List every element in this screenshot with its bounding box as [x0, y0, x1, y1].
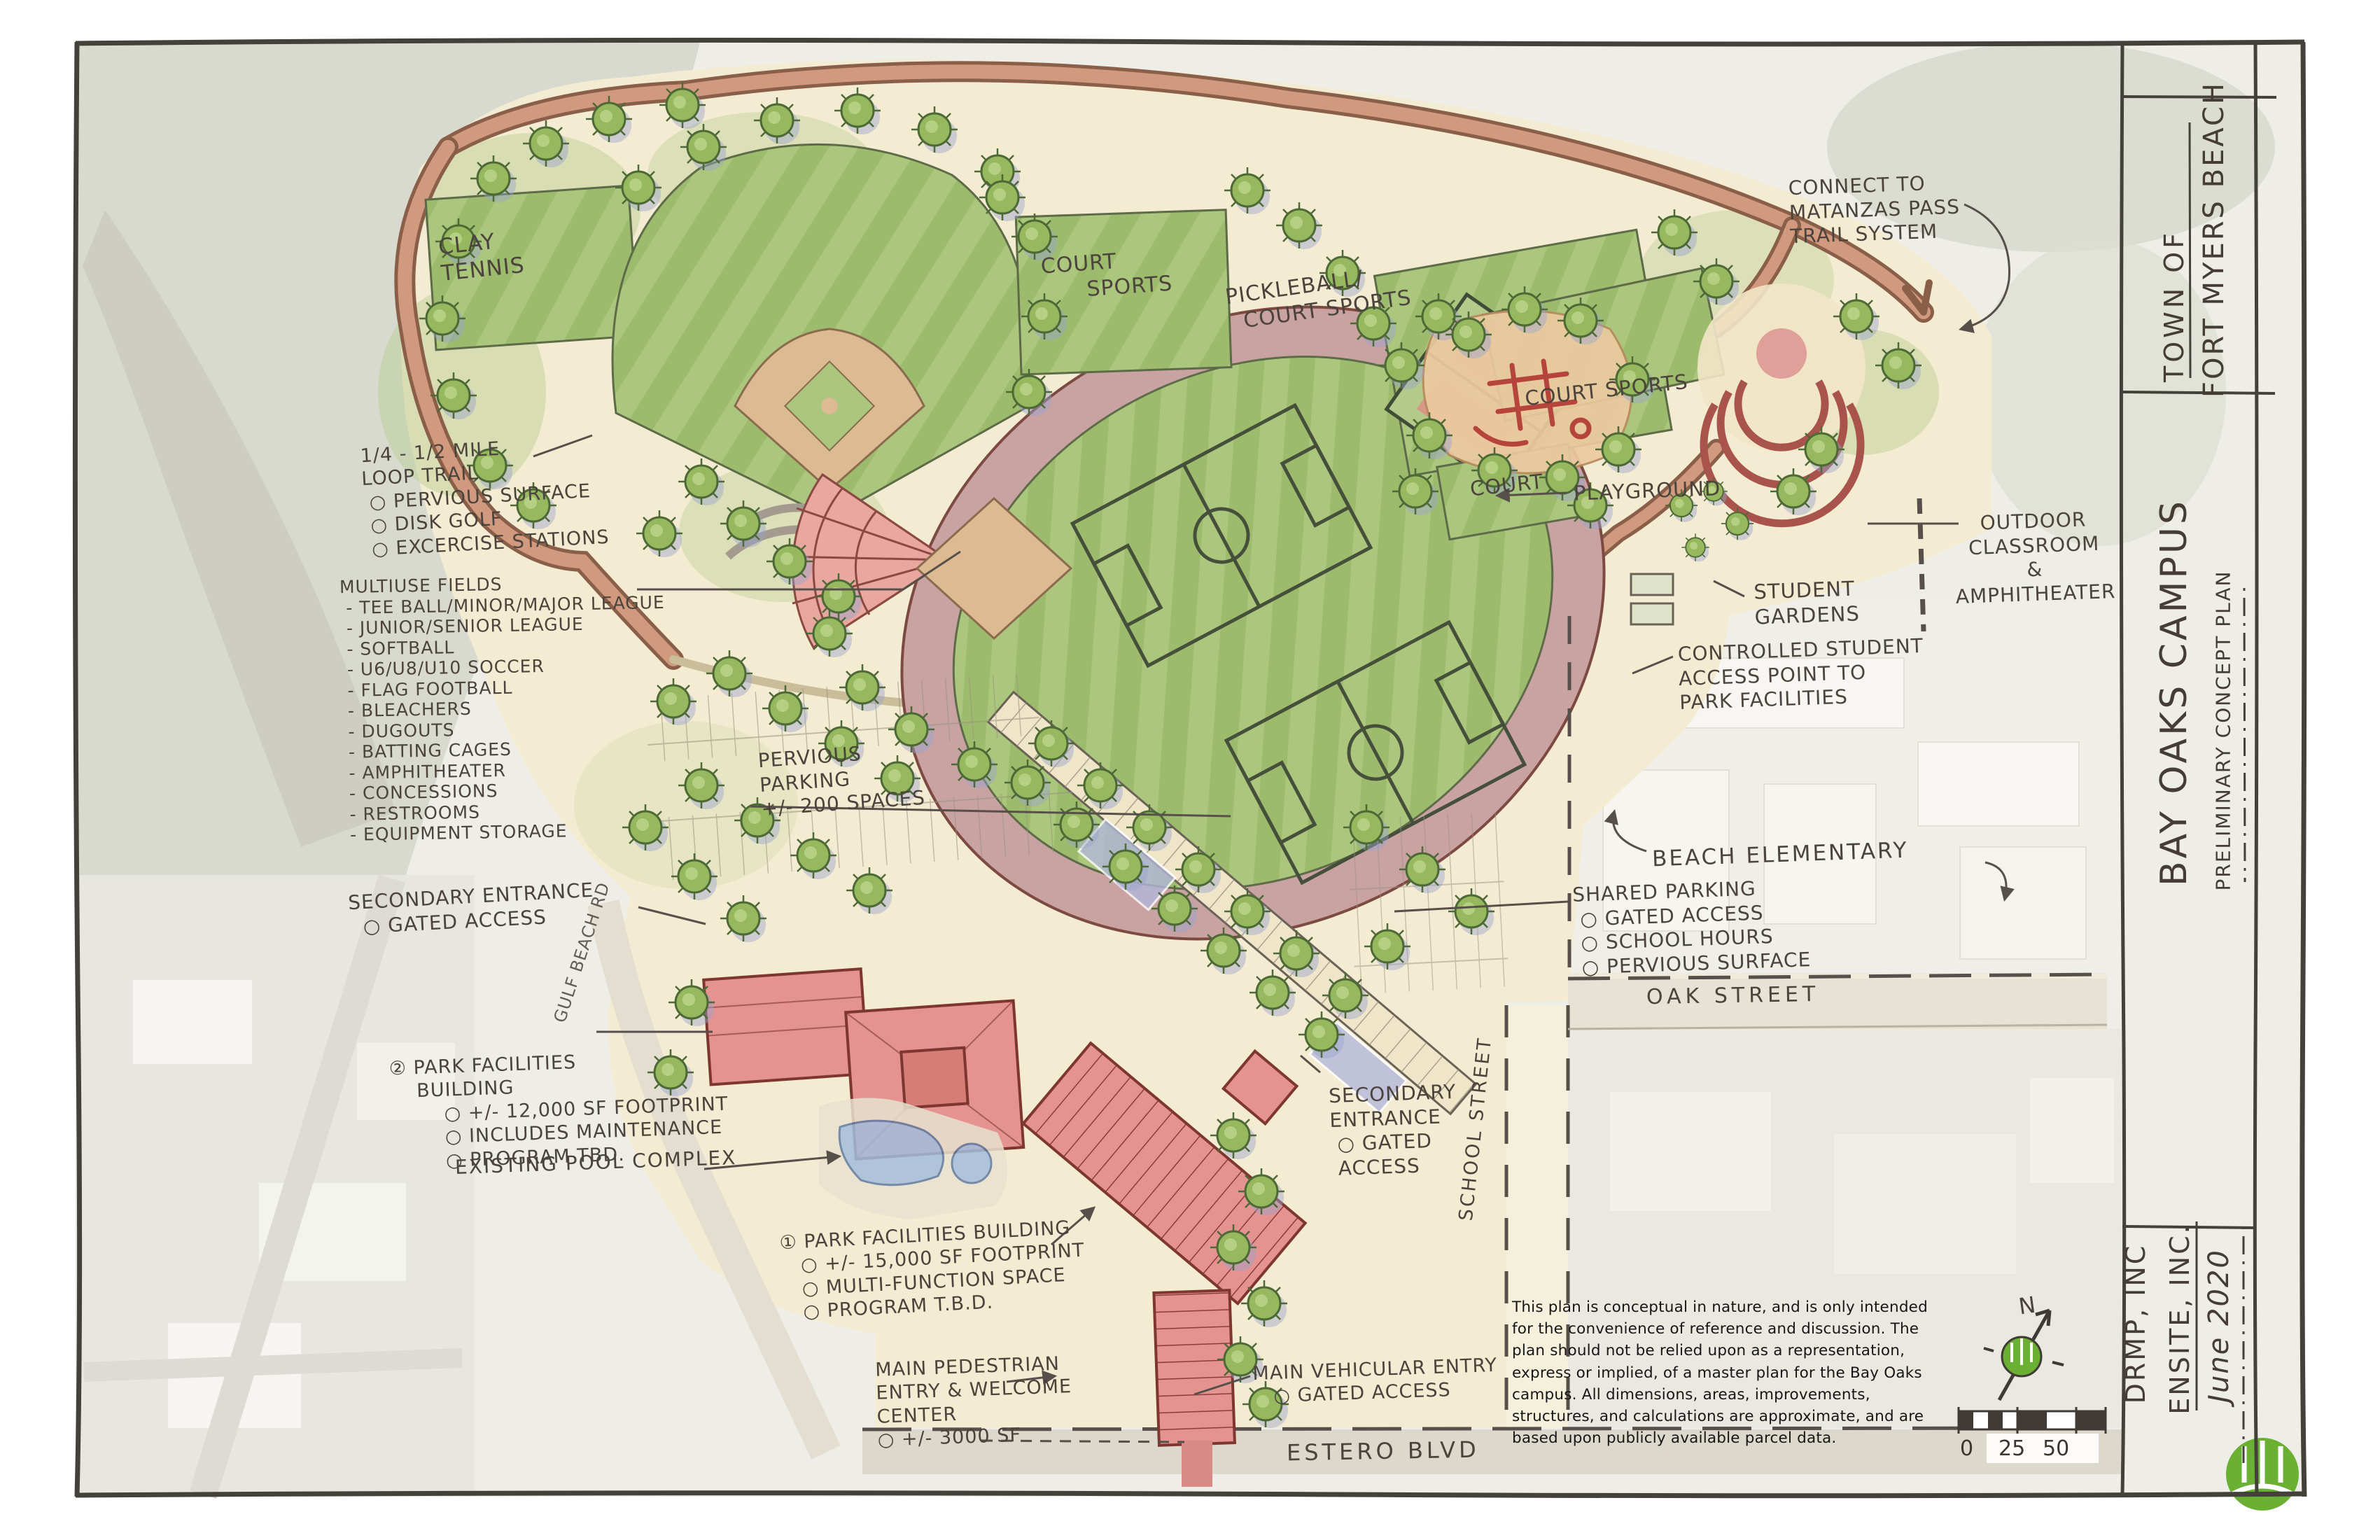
scale-label-25: 25	[1998, 1436, 2025, 1461]
titleblock-town-line1: TOWN OF	[2159, 166, 2190, 446]
bay-oaks-logo	[2226, 1438, 2299, 1511]
concept-plan-sheet: CONNECT TO MATANZAS PASS TRAIL SYSTEM CL…	[0, 0, 2380, 1540]
label-student-gardens: STUDENT GARDENS	[1753, 576, 1861, 630]
titleblock-project-subtitle: PRELIMINARY CONCEPT PLAN	[2212, 583, 2235, 891]
titleblock-project-title: BAY OAKS CAMPUS	[2153, 578, 2195, 886]
label-loop-trail: 1/4 - 1/2 MILE LOOP TRAIL ○ PERVIOUS SUR…	[360, 432, 610, 561]
titleblock-date: June 2020	[2203, 1186, 2235, 1466]
label-clay-tennis: CLAY TENNIS	[437, 225, 526, 288]
north-label: N	[2017, 1291, 2038, 1321]
label-pervious-parking: PERVIOUS PARKING +/- 200 SPACES	[757, 738, 926, 822]
label-main-vehicular-entry: MAIN VEHICULAR ENTRY ○ GATED ACCESS	[1252, 1354, 1499, 1409]
label-oak-street: OAK STREET	[1646, 981, 1820, 1010]
scale-label-0: 0	[1960, 1436, 1973, 1461]
label-outdoor-classroom: OUTDOOR CLASSROOM & AMPHITHEATER	[1953, 507, 2116, 610]
label-multiuse-fields: MULTIUSE FIELDS - TEE BALL/MINOR/MAJOR L…	[339, 571, 669, 846]
titleblock-town-line2: FORT MYERS BEACH	[2198, 90, 2230, 398]
label-main-pedestrian-entry: MAIN PEDESTRIAN ENTRY & WELCOME CENTER ○…	[875, 1352, 1074, 1452]
titleblock-consultant-1: DRMP, INC	[2120, 1184, 2151, 1464]
label-controlled-access: CONTROLLED STUDENT ACCESS POINT TO PARK …	[1677, 634, 1926, 715]
scale-label-50: 50	[2043, 1436, 2069, 1461]
label-playground: PLAYGROUND	[1573, 476, 1721, 506]
disclaimer-note: This plan is conceptual in nature, and i…	[1512, 1296, 1932, 1449]
label-shared-parking: SHARED PARKING ○ GATED ACCESS ○ SCHOOL H…	[1572, 875, 1812, 981]
welcome-center-building	[1154, 1290, 1235, 1445]
label-connect-trail: CONNECT TO MATANZAS PASS TRAIL SYSTEM	[1788, 171, 1961, 250]
label-court-sports-top: COURT SPORTS	[1040, 245, 1174, 306]
titleblock-consultant-2: ENSITE, INC.	[2164, 1179, 2195, 1459]
label-estero-blvd: ESTERO BLVD	[1287, 1436, 1480, 1467]
label-secondary-entrance-school: SECONDARY ENTRANCE ○ GATED ACCESS	[1329, 1080, 1459, 1182]
label-park-facilities-bldg-1: ① PARK FACILITIES BUILDING ○ +/- 15,000 …	[779, 1216, 1088, 1325]
